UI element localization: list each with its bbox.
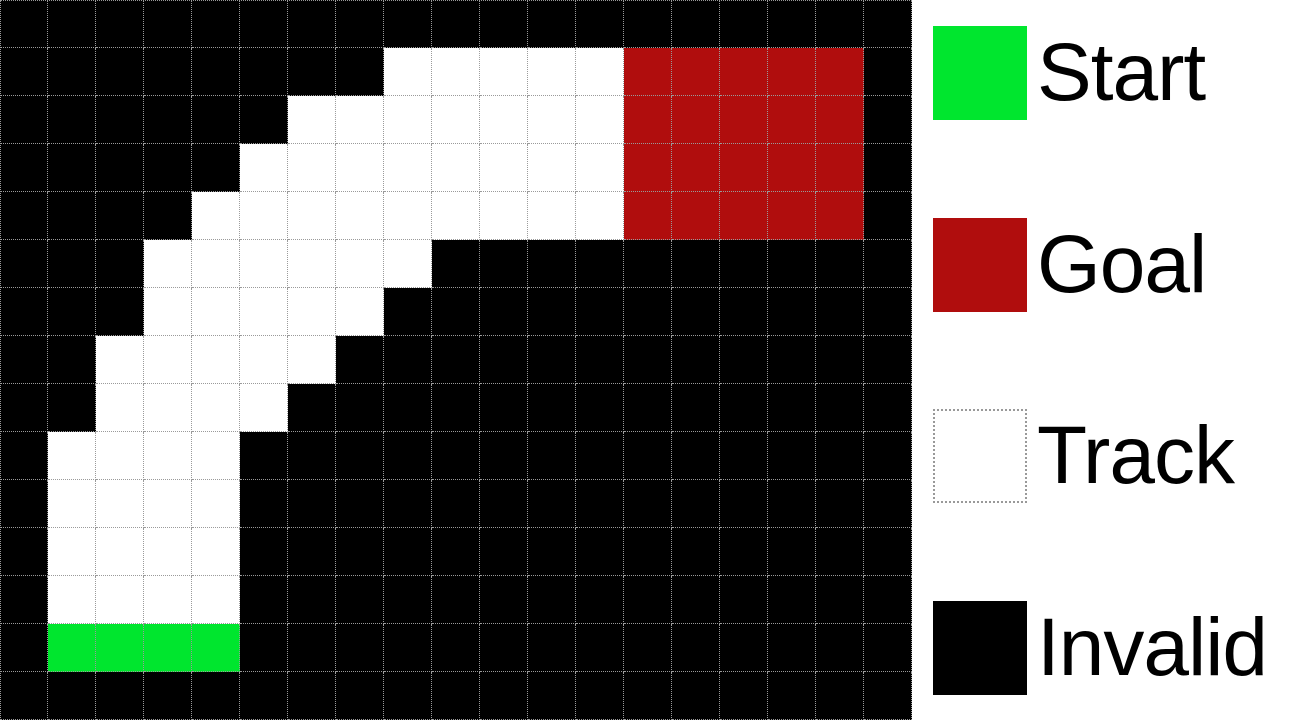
grid-cell-track bbox=[240, 240, 288, 288]
grid-cell-invalid bbox=[432, 576, 480, 624]
grid-cell-invalid bbox=[480, 336, 528, 384]
grid-cell-invalid bbox=[864, 384, 912, 432]
grid-cell-track bbox=[480, 192, 528, 240]
grid-cell-invalid bbox=[576, 576, 624, 624]
grid-cell-track bbox=[192, 480, 240, 528]
legend-label-goal: Goal bbox=[1037, 224, 1206, 306]
grid-cell-invalid bbox=[528, 288, 576, 336]
grid-cell-goal bbox=[768, 192, 816, 240]
grid-cell-track bbox=[336, 240, 384, 288]
grid-cell-invalid bbox=[480, 576, 528, 624]
grid-cell-invalid bbox=[624, 240, 672, 288]
grid-cell-goal bbox=[816, 48, 864, 96]
grid-cell-invalid bbox=[528, 336, 576, 384]
grid-cell-invalid bbox=[432, 432, 480, 480]
grid-cell-invalid bbox=[288, 672, 336, 720]
grid-cell-invalid bbox=[96, 0, 144, 48]
grid-cell-goal bbox=[816, 144, 864, 192]
grid-cell-goal bbox=[624, 192, 672, 240]
grid-cell-track bbox=[192, 288, 240, 336]
grid-cell-invalid bbox=[624, 432, 672, 480]
grid-cell-track bbox=[576, 192, 624, 240]
grid-cell-invalid bbox=[144, 192, 192, 240]
grid-cell-invalid bbox=[672, 480, 720, 528]
grid-cell-track bbox=[432, 48, 480, 96]
grid-cell-track bbox=[288, 288, 336, 336]
grid-cell-track bbox=[240, 336, 288, 384]
grid-cell-track bbox=[240, 192, 288, 240]
grid-cell-track bbox=[144, 384, 192, 432]
grid-cell-invalid bbox=[336, 336, 384, 384]
grid-cell-invalid bbox=[0, 288, 48, 336]
grid-cell-track bbox=[432, 192, 480, 240]
grid-cell-invalid bbox=[240, 480, 288, 528]
grid-cell-track bbox=[384, 48, 432, 96]
grid-cell-track bbox=[240, 288, 288, 336]
grid-cell-invalid bbox=[480, 528, 528, 576]
grid-cell-invalid bbox=[768, 0, 816, 48]
legend-panel: Start Goal Track Invalid bbox=[912, 0, 1302, 720]
grid-cell-start bbox=[48, 624, 96, 672]
grid-cell-invalid bbox=[576, 624, 624, 672]
grid-cell-invalid bbox=[528, 528, 576, 576]
grid-cell-goal bbox=[816, 96, 864, 144]
grid-cell-invalid bbox=[240, 624, 288, 672]
grid-cell-invalid bbox=[288, 528, 336, 576]
grid-cell-invalid bbox=[672, 336, 720, 384]
grid-cell-invalid bbox=[864, 96, 912, 144]
grid-cell-track bbox=[336, 144, 384, 192]
grid-cell-invalid bbox=[432, 384, 480, 432]
grid-cell-invalid bbox=[672, 288, 720, 336]
grid-cell-invalid bbox=[576, 288, 624, 336]
grid-cell-start bbox=[144, 624, 192, 672]
grid-cell-invalid bbox=[864, 48, 912, 96]
grid-cell-invalid bbox=[576, 432, 624, 480]
grid-cell-invalid bbox=[288, 432, 336, 480]
grid-cell-invalid bbox=[96, 144, 144, 192]
grid-cell-invalid bbox=[336, 624, 384, 672]
grid-cell-invalid bbox=[528, 432, 576, 480]
grid-cell-goal bbox=[768, 48, 816, 96]
grid-cell-invalid bbox=[816, 288, 864, 336]
track-grid-panel bbox=[0, 0, 912, 720]
grid-cell-invalid bbox=[48, 672, 96, 720]
grid-cell-invalid bbox=[672, 240, 720, 288]
grid-cell-invalid bbox=[144, 48, 192, 96]
grid-cell-invalid bbox=[768, 240, 816, 288]
grid-cell-invalid bbox=[0, 144, 48, 192]
grid-cell-goal bbox=[768, 144, 816, 192]
grid-cell-invalid bbox=[672, 432, 720, 480]
grid-cell-invalid bbox=[0, 48, 48, 96]
grid-cell-track bbox=[336, 96, 384, 144]
legend-item-goal: Goal bbox=[933, 218, 1206, 312]
grid-cell-invalid bbox=[240, 96, 288, 144]
grid-cell-invalid bbox=[0, 240, 48, 288]
grid-cell-invalid bbox=[48, 0, 96, 48]
grid-cell-invalid bbox=[864, 336, 912, 384]
grid-cell-invalid bbox=[0, 0, 48, 48]
grid-cell-track bbox=[48, 528, 96, 576]
grid-cell-track bbox=[96, 336, 144, 384]
grid-cell-invalid bbox=[48, 48, 96, 96]
grid-cell-invalid bbox=[720, 672, 768, 720]
grid-cell-invalid bbox=[432, 624, 480, 672]
grid-cell-goal bbox=[672, 48, 720, 96]
grid-cell-invalid bbox=[624, 384, 672, 432]
grid-cell-invalid bbox=[432, 480, 480, 528]
legend-label-start: Start bbox=[1037, 32, 1205, 114]
grid-cell-invalid bbox=[96, 192, 144, 240]
grid-cell-invalid bbox=[720, 576, 768, 624]
grid-cell-invalid bbox=[480, 240, 528, 288]
grid-cell-goal bbox=[816, 192, 864, 240]
grid-cell-invalid bbox=[768, 624, 816, 672]
grid-cell-track bbox=[336, 288, 384, 336]
grid-cell-invalid bbox=[0, 624, 48, 672]
grid-cell-invalid bbox=[192, 96, 240, 144]
grid-cell-track bbox=[480, 48, 528, 96]
grid-cell-invalid bbox=[336, 0, 384, 48]
grid-cell-invalid bbox=[720, 384, 768, 432]
grid-cell-invalid bbox=[432, 240, 480, 288]
grid-cell-invalid bbox=[192, 0, 240, 48]
grid-cell-track bbox=[144, 288, 192, 336]
grid-cell-track bbox=[384, 192, 432, 240]
grid-cell-invalid bbox=[480, 480, 528, 528]
grid-cell-invalid bbox=[528, 624, 576, 672]
grid-cell-invalid bbox=[624, 480, 672, 528]
grid-cell-invalid bbox=[0, 576, 48, 624]
grid-cell-invalid bbox=[768, 576, 816, 624]
grid-cell-track bbox=[192, 528, 240, 576]
grid-cell-invalid bbox=[576, 480, 624, 528]
grid-cell-invalid bbox=[432, 672, 480, 720]
grid-cell-invalid bbox=[720, 288, 768, 336]
grid-cell-goal bbox=[672, 96, 720, 144]
grid-cell-invalid bbox=[384, 624, 432, 672]
grid-cell-invalid bbox=[528, 576, 576, 624]
grid-cell-invalid bbox=[48, 288, 96, 336]
grid-cell-goal bbox=[624, 48, 672, 96]
grid-cell-invalid bbox=[480, 288, 528, 336]
grid-cell-invalid bbox=[768, 480, 816, 528]
grid-cell-invalid bbox=[288, 384, 336, 432]
grid-cell-invalid bbox=[864, 288, 912, 336]
grid-cell-invalid bbox=[384, 288, 432, 336]
legend-item-invalid: Invalid bbox=[933, 601, 1267, 695]
grid-cell-invalid bbox=[624, 624, 672, 672]
grid-cell-invalid bbox=[96, 240, 144, 288]
grid-cell-invalid bbox=[48, 144, 96, 192]
grid-cell-invalid bbox=[0, 528, 48, 576]
grid-cell-invalid bbox=[240, 576, 288, 624]
grid-cell-invalid bbox=[48, 384, 96, 432]
grid-cell-invalid bbox=[144, 672, 192, 720]
grid-cell-track bbox=[288, 144, 336, 192]
grid-cell-track bbox=[528, 144, 576, 192]
grid-cell-track bbox=[384, 144, 432, 192]
grid-cell-invalid bbox=[0, 336, 48, 384]
grid-cell-invalid bbox=[384, 384, 432, 432]
grid-cell-invalid bbox=[672, 528, 720, 576]
grid-cell-invalid bbox=[480, 624, 528, 672]
grid-cell-invalid bbox=[480, 0, 528, 48]
grid-cell-track bbox=[192, 336, 240, 384]
grid-cell-invalid bbox=[384, 336, 432, 384]
grid-cell-invalid bbox=[432, 0, 480, 48]
grid-cell-track bbox=[288, 192, 336, 240]
grid-cell-invalid bbox=[0, 192, 48, 240]
grid-cell-invalid bbox=[384, 528, 432, 576]
grid-cell-invalid bbox=[0, 672, 48, 720]
grid-cell-invalid bbox=[528, 240, 576, 288]
grid-cell-invalid bbox=[624, 528, 672, 576]
grid-cell-invalid bbox=[864, 144, 912, 192]
grid-cell-track bbox=[48, 480, 96, 528]
grid-cell-track bbox=[48, 576, 96, 624]
grid-cell-track bbox=[144, 480, 192, 528]
grid-cell-invalid bbox=[816, 432, 864, 480]
legend-item-start: Start bbox=[933, 26, 1205, 120]
grid-cell-invalid bbox=[720, 480, 768, 528]
grid-cell-goal bbox=[672, 192, 720, 240]
grid-cell-invalid bbox=[192, 48, 240, 96]
grid-cell-track bbox=[528, 192, 576, 240]
grid-cell-start bbox=[96, 624, 144, 672]
grid-cell-track bbox=[192, 576, 240, 624]
grid-cell-track bbox=[480, 144, 528, 192]
grid-cell-invalid bbox=[864, 576, 912, 624]
grid-cell-invalid bbox=[384, 432, 432, 480]
grid-cell-invalid bbox=[288, 624, 336, 672]
grid-cell-invalid bbox=[528, 480, 576, 528]
grid-cell-invalid bbox=[288, 480, 336, 528]
grid-cell-track bbox=[96, 384, 144, 432]
grid-cell-track bbox=[384, 96, 432, 144]
grid-cell-invalid bbox=[720, 432, 768, 480]
grid-cell-invalid bbox=[864, 432, 912, 480]
grid-cell-invalid bbox=[288, 576, 336, 624]
grid-cell-goal bbox=[624, 96, 672, 144]
grid-cell-track bbox=[96, 432, 144, 480]
grid-cell-invalid bbox=[432, 336, 480, 384]
grid-cell-invalid bbox=[48, 192, 96, 240]
grid-cell-track bbox=[288, 96, 336, 144]
grid-cell-invalid bbox=[96, 48, 144, 96]
grid-cell-invalid bbox=[240, 432, 288, 480]
grid-cell-invalid bbox=[576, 0, 624, 48]
grid-cell-track bbox=[48, 432, 96, 480]
grid-cell-invalid bbox=[720, 0, 768, 48]
grid-cell-invalid bbox=[864, 192, 912, 240]
grid-cell-track bbox=[144, 432, 192, 480]
grid-cell-invalid bbox=[624, 0, 672, 48]
grid-cell-goal bbox=[624, 144, 672, 192]
grid-cell-goal bbox=[720, 48, 768, 96]
grid-cell-invalid bbox=[288, 0, 336, 48]
grid-cell-track bbox=[528, 48, 576, 96]
grid-cell-invalid bbox=[576, 240, 624, 288]
grid-cell-invalid bbox=[48, 240, 96, 288]
grid-cell-track bbox=[96, 576, 144, 624]
grid-cell-track bbox=[528, 96, 576, 144]
grid-cell-track bbox=[192, 432, 240, 480]
grid-cell-invalid bbox=[864, 528, 912, 576]
track-swatch bbox=[933, 409, 1027, 503]
grid-cell-track bbox=[288, 240, 336, 288]
grid-cell-invalid bbox=[96, 288, 144, 336]
grid-cell-invalid bbox=[768, 288, 816, 336]
grid-cell-invalid bbox=[576, 672, 624, 720]
grid-cell-invalid bbox=[624, 576, 672, 624]
grid-cell-invalid bbox=[192, 144, 240, 192]
grid-cell-invalid bbox=[672, 0, 720, 48]
grid-cell-invalid bbox=[144, 0, 192, 48]
grid-cell-invalid bbox=[720, 336, 768, 384]
grid-cell-invalid bbox=[0, 432, 48, 480]
grid-cell-track bbox=[480, 96, 528, 144]
legend-label-track: Track bbox=[1037, 415, 1234, 497]
grid-cell-invalid bbox=[336, 576, 384, 624]
grid-cell-invalid bbox=[816, 576, 864, 624]
grid-cell-track bbox=[192, 240, 240, 288]
invalid-swatch bbox=[933, 601, 1027, 695]
grid-cell-invalid bbox=[864, 624, 912, 672]
grid-cell-invalid bbox=[864, 480, 912, 528]
grid-cell-invalid bbox=[816, 240, 864, 288]
start-swatch bbox=[933, 26, 1027, 120]
grid-cell-invalid bbox=[624, 288, 672, 336]
grid-cell-goal bbox=[720, 192, 768, 240]
grid-cell-invalid bbox=[672, 384, 720, 432]
grid-cell-invalid bbox=[480, 384, 528, 432]
grid-cell-track bbox=[336, 192, 384, 240]
grid-cell-invalid bbox=[816, 672, 864, 720]
grid-cell-track bbox=[432, 144, 480, 192]
grid-cell-invalid bbox=[528, 0, 576, 48]
grid-cell-invalid bbox=[384, 480, 432, 528]
grid-cell-track bbox=[144, 336, 192, 384]
grid-cell-invalid bbox=[240, 672, 288, 720]
grid-cell-invalid bbox=[816, 0, 864, 48]
grid-cell-start bbox=[192, 624, 240, 672]
goal-swatch bbox=[933, 218, 1027, 312]
grid-cell-invalid bbox=[432, 288, 480, 336]
grid-cell-track bbox=[288, 336, 336, 384]
grid-cell-invalid bbox=[672, 624, 720, 672]
grid-cell-invalid bbox=[816, 624, 864, 672]
grid-cell-invalid bbox=[240, 48, 288, 96]
grid-cell-invalid bbox=[384, 576, 432, 624]
grid-cell-invalid bbox=[720, 240, 768, 288]
grid-cell-track bbox=[432, 96, 480, 144]
grid-cell-invalid bbox=[864, 0, 912, 48]
grid-cell-invalid bbox=[768, 528, 816, 576]
grid-cell-invalid bbox=[48, 336, 96, 384]
grid-cell-invalid bbox=[384, 0, 432, 48]
grid-cell-track bbox=[96, 528, 144, 576]
grid-cell-track bbox=[144, 240, 192, 288]
grid-cell-invalid bbox=[96, 96, 144, 144]
grid-cell-invalid bbox=[0, 384, 48, 432]
grid-cell-invalid bbox=[336, 384, 384, 432]
grid-cell-invalid bbox=[768, 432, 816, 480]
grid-cell-track bbox=[96, 480, 144, 528]
grid-cell-invalid bbox=[96, 672, 144, 720]
grid-cell-goal bbox=[720, 96, 768, 144]
legend-label-invalid: Invalid bbox=[1037, 607, 1267, 689]
grid-cell-invalid bbox=[432, 528, 480, 576]
grid-cell-invalid bbox=[768, 672, 816, 720]
grid-cell-goal bbox=[768, 96, 816, 144]
grid-cell-track bbox=[192, 384, 240, 432]
grid-cell-invalid bbox=[144, 96, 192, 144]
grid-cell-invalid bbox=[624, 336, 672, 384]
racetrack-grid bbox=[0, 0, 912, 720]
grid-cell-invalid bbox=[720, 528, 768, 576]
grid-cell-track bbox=[240, 144, 288, 192]
grid-cell-track bbox=[144, 528, 192, 576]
grid-cell-invalid bbox=[864, 672, 912, 720]
grid-cell-invalid bbox=[0, 480, 48, 528]
grid-cell-invalid bbox=[144, 144, 192, 192]
grid-cell-track bbox=[576, 48, 624, 96]
grid-cell-invalid bbox=[816, 384, 864, 432]
grid-cell-invalid bbox=[528, 672, 576, 720]
legend-item-track: Track bbox=[933, 409, 1234, 503]
grid-cell-invalid bbox=[816, 336, 864, 384]
grid-cell-invalid bbox=[720, 624, 768, 672]
grid-cell-invalid bbox=[0, 96, 48, 144]
grid-cell-invalid bbox=[336, 672, 384, 720]
grid-cell-invalid bbox=[480, 672, 528, 720]
grid-cell-track bbox=[240, 384, 288, 432]
grid-cell-invalid bbox=[336, 528, 384, 576]
grid-cell-invalid bbox=[480, 432, 528, 480]
grid-cell-invalid bbox=[576, 336, 624, 384]
grid-cell-track bbox=[144, 576, 192, 624]
grid-cell-invalid bbox=[816, 480, 864, 528]
grid-cell-invalid bbox=[336, 48, 384, 96]
grid-cell-invalid bbox=[816, 528, 864, 576]
grid-cell-invalid bbox=[528, 384, 576, 432]
grid-cell-track bbox=[576, 96, 624, 144]
grid-cell-invalid bbox=[672, 576, 720, 624]
grid-cell-invalid bbox=[240, 528, 288, 576]
grid-cell-invalid bbox=[240, 0, 288, 48]
grid-cell-track bbox=[576, 144, 624, 192]
grid-cell-invalid bbox=[336, 432, 384, 480]
grid-cell-track bbox=[192, 192, 240, 240]
grid-cell-goal bbox=[720, 144, 768, 192]
grid-cell-invalid bbox=[48, 96, 96, 144]
grid-cell-invalid bbox=[624, 672, 672, 720]
grid-cell-invalid bbox=[576, 528, 624, 576]
grid-cell-invalid bbox=[576, 384, 624, 432]
grid-cell-invalid bbox=[864, 240, 912, 288]
grid-cell-invalid bbox=[768, 384, 816, 432]
grid-cell-invalid bbox=[672, 672, 720, 720]
grid-cell-goal bbox=[672, 144, 720, 192]
grid-cell-invalid bbox=[768, 336, 816, 384]
grid-cell-invalid bbox=[384, 672, 432, 720]
grid-cell-invalid bbox=[288, 48, 336, 96]
grid-cell-invalid bbox=[336, 480, 384, 528]
grid-cell-track bbox=[384, 240, 432, 288]
grid-cell-invalid bbox=[192, 672, 240, 720]
